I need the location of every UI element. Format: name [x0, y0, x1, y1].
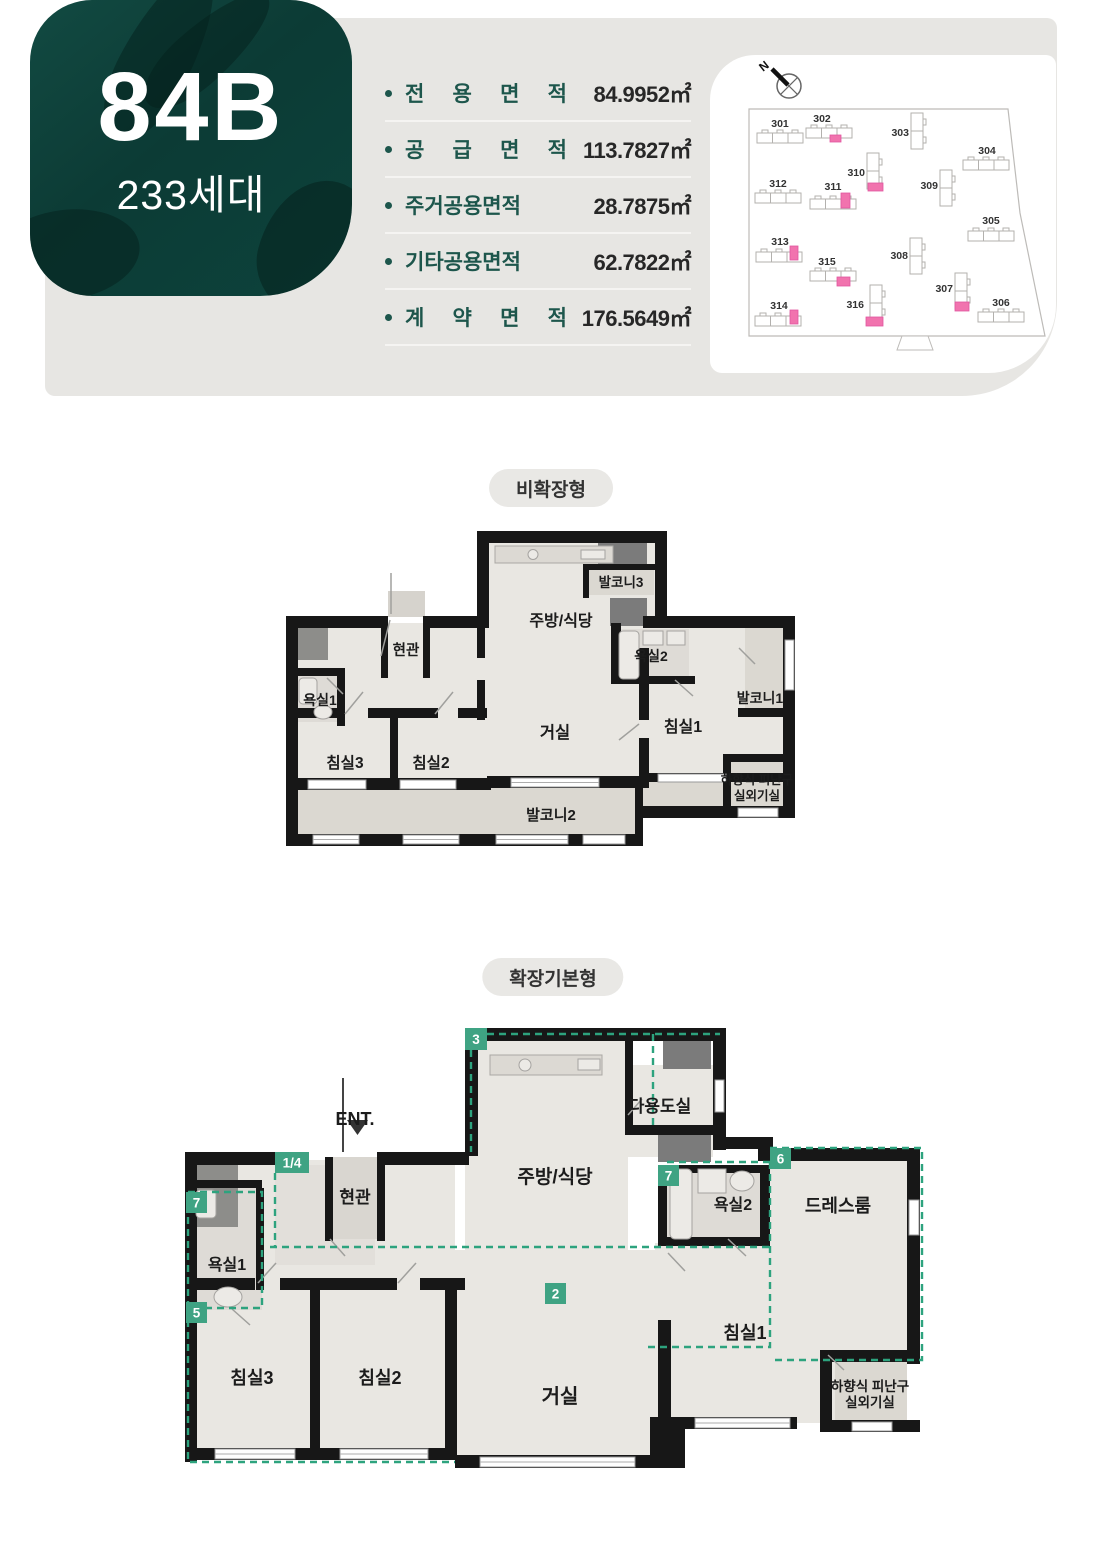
svg-text:305: 305 — [982, 215, 1000, 227]
room-label-evac2: 실외기실 — [734, 788, 780, 803]
site-map: N 301 302 303 304 — [710, 55, 1056, 373]
bullet-icon — [385, 202, 392, 209]
svg-text:301: 301 — [771, 118, 789, 130]
site-entrance-gate — [897, 336, 933, 350]
area-row-value: 28.7875㎡ — [567, 189, 691, 221]
zone-badge-7-right: 7 — [665, 1169, 673, 1184]
area-row-label: 계 약 면 적 — [405, 302, 567, 332]
bullet-icon — [385, 314, 392, 321]
room-label-bed1: 침실1 — [723, 1323, 766, 1343]
page: 84B 233세대 전 용 면 적 84.9952㎡ 공 급 면 적 113.7… — [0, 0, 1100, 1560]
building-301: 301 — [757, 118, 803, 143]
svg-text:306: 306 — [992, 297, 1010, 309]
svg-text:309: 309 — [920, 180, 938, 192]
unit-households: 233세대 — [30, 161, 352, 221]
room-label-bath1: 욕실1 — [208, 1256, 246, 1274]
area-row-label: 주거공용면적 — [405, 190, 567, 220]
zone-badge-3: 3 — [472, 1032, 480, 1047]
bullet-icon — [385, 90, 392, 97]
room-label-living: 거실 — [540, 723, 570, 742]
area-row-value: 62.7822㎡ — [567, 245, 691, 277]
unit-type-code: 84B — [30, 58, 352, 155]
svg-text:311: 311 — [825, 181, 842, 193]
ent-label: ENT. — [335, 1109, 374, 1129]
building-309: 309 — [920, 170, 955, 206]
floorplan-nonexpanded: 주방/식당 발코니3 현관 욕실1 욕실2 발코니1 거실 침실1 침실3 침실… — [283, 528, 813, 858]
room-label-entrance: 현관 — [339, 1188, 371, 1207]
room-label-bed3: 침실3 — [230, 1368, 273, 1388]
room-label-bath1: 욕실1 — [303, 692, 337, 708]
area-row-label: 기타공용면적 — [405, 246, 567, 276]
room-label-evac2: 실외기실 — [845, 1394, 895, 1410]
plan1-title: 비확장형 — [516, 475, 586, 502]
building-303: 303 — [891, 113, 926, 149]
bullet-icon — [385, 146, 392, 153]
site-map-card: N 301 302 303 304 — [710, 55, 1056, 373]
area-row-value: 84.9952㎡ — [567, 77, 691, 109]
area-row: 계 약 면 적 176.5649㎡ — [385, 290, 691, 346]
room-label-bed2: 침실2 — [358, 1368, 401, 1388]
room-label-bath2: 욕실2 — [714, 1196, 752, 1214]
svg-text:315: 315 — [818, 256, 836, 268]
zone-badge-6: 6 — [777, 1152, 785, 1167]
building-302: 302 — [806, 113, 852, 142]
building-308: 308 — [890, 238, 925, 274]
svg-text:313: 313 — [771, 236, 789, 248]
svg-text:304: 304 — [978, 145, 996, 157]
svg-text:307: 307 — [935, 283, 953, 295]
building-305: 305 — [968, 215, 1014, 241]
room-label-bath2: 욕실2 — [634, 648, 668, 664]
room-label-kitchen: 주방/식당 — [529, 612, 593, 630]
room-label-utility: 다용도실 — [629, 1097, 692, 1116]
area-row: 공 급 면 적 113.7827㎡ — [385, 122, 691, 178]
room-label-kitchen: 주방/식당 — [517, 1166, 593, 1188]
area-row-label: 공 급 면 적 — [405, 134, 567, 164]
floorplan-expanded: 3 1/4 7 7 6 5 2 주방/식당 다용도실 ENT. 현관 욕실1 욕… — [180, 1025, 940, 1530]
plan1-title-pill: 비확장형 — [489, 469, 613, 507]
compass-icon: N — [756, 58, 801, 98]
area-row-value: 113.7827㎡ — [567, 133, 691, 165]
area-row-value: 176.5649㎡ — [567, 301, 691, 333]
bullet-icon — [385, 258, 392, 265]
plan2-title: 확장기본형 — [509, 964, 596, 991]
room-label-bed1: 침실1 — [664, 717, 702, 736]
zone-badge-7-left: 7 — [193, 1196, 201, 1211]
building-312: 312 — [755, 178, 801, 203]
room-label-balcony3: 발코니3 — [599, 574, 644, 590]
svg-text:316: 316 — [846, 299, 864, 311]
zone-badge-1-4: 1/4 — [283, 1156, 302, 1171]
area-row: 기타공용면적 62.7822㎡ — [385, 234, 691, 290]
zone-badge-2: 2 — [552, 1287, 560, 1302]
svg-text:312: 312 — [769, 178, 787, 190]
room-label-balcony2: 발코니2 — [526, 807, 576, 824]
room-label-bed3: 침실3 — [326, 753, 364, 772]
building-307: 307 — [935, 273, 970, 311]
building-311: 311 — [810, 181, 856, 209]
building-314: 314 — [755, 300, 801, 326]
room-label-dress: 드레스룸 — [805, 1196, 871, 1216]
room-label-balcony1: 발코니1 — [737, 690, 784, 706]
area-row: 주거공용면적 28.7875㎡ — [385, 178, 691, 234]
svg-text:302: 302 — [813, 113, 831, 125]
building-316: 316 — [846, 285, 885, 326]
room-label-entrance: 현관 — [393, 642, 420, 659]
area-row-label: 전 용 면 적 — [405, 78, 567, 108]
room-label-evac1: 하향식 피난구 — [721, 772, 794, 787]
svg-text:310: 310 — [847, 167, 865, 179]
compass-north-label: N — [756, 58, 771, 74]
unit-type-card: 84B 233세대 — [30, 0, 352, 296]
zone-badge-5: 5 — [193, 1306, 201, 1321]
svg-text:303: 303 — [891, 127, 909, 139]
area-spec-table: 전 용 면 적 84.9952㎡ 공 급 면 적 113.7827㎡ 주거공용면… — [385, 66, 691, 346]
building-304: 304 — [963, 145, 1009, 170]
building-306: 306 — [978, 297, 1024, 322]
svg-text:308: 308 — [890, 250, 908, 262]
building-315: 315 — [810, 256, 856, 286]
svg-text:314: 314 — [770, 300, 788, 312]
room-label-evac1: 하향식 피난구 — [831, 1378, 909, 1394]
building-310: 310 — [847, 153, 883, 191]
area-row: 전 용 면 적 84.9952㎡ — [385, 66, 691, 122]
plan2-title-pill: 확장기본형 — [482, 958, 623, 996]
building-313: 313 — [756, 236, 802, 262]
room-label-bed2: 침실2 — [412, 753, 449, 772]
room-label-living: 거실 — [542, 1385, 579, 1408]
plan1-floors — [291, 538, 790, 838]
